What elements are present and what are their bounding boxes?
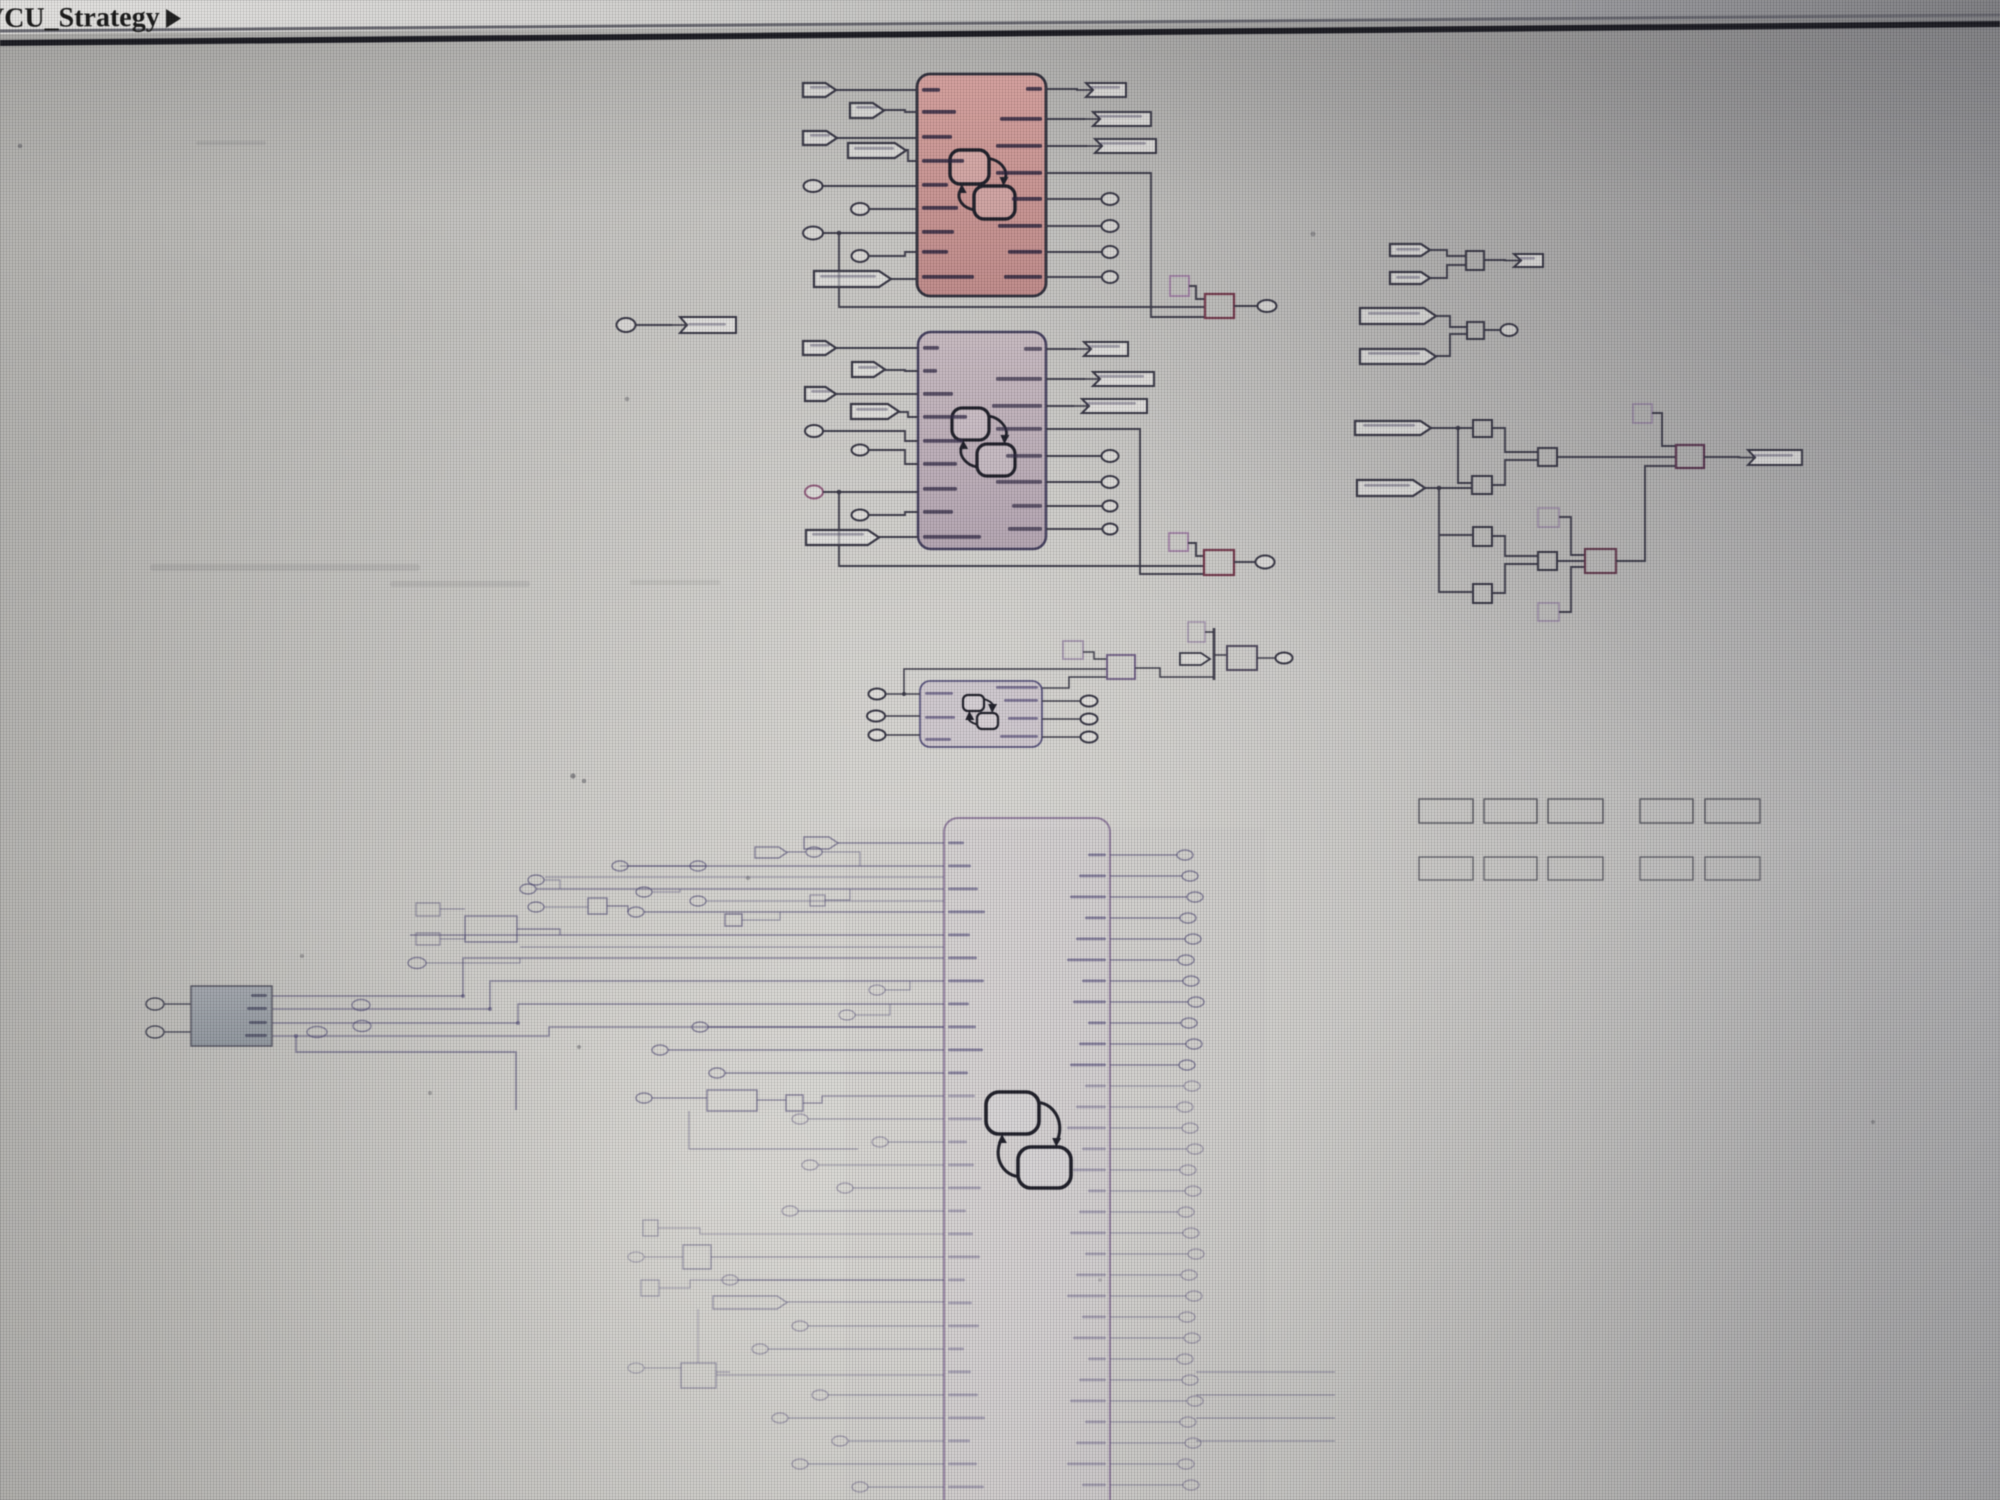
svg-text:VCU_Strategy: VCU_Strategy bbox=[0, 2, 160, 34]
